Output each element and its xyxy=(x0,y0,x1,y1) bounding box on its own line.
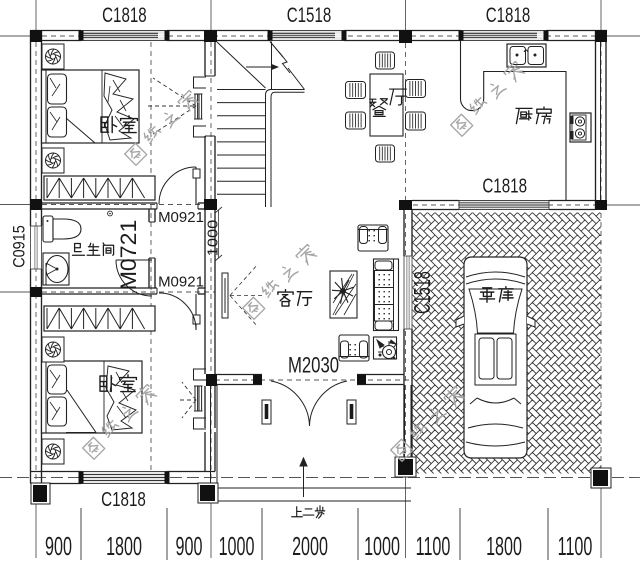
svg-text:1100: 1100 xyxy=(558,531,593,560)
svg-text:M0921: M0921 xyxy=(158,209,204,226)
svg-text:M0921: M0921 xyxy=(158,274,204,291)
svg-text:M2030: M2030 xyxy=(288,353,339,378)
svg-text:C1518: C1518 xyxy=(287,2,332,26)
svg-text:1100: 1100 xyxy=(416,531,451,560)
svg-text:1000: 1000 xyxy=(364,531,400,560)
svg-text:C1818: C1818 xyxy=(101,488,146,511)
svg-text:C1818: C1818 xyxy=(486,2,531,26)
svg-text:1800: 1800 xyxy=(486,531,522,560)
svg-text:1000: 1000 xyxy=(219,531,255,560)
svg-text:900: 900 xyxy=(176,531,203,560)
svg-text:C1518: C1518 xyxy=(411,271,436,314)
svg-text:M0721: M0721 xyxy=(116,220,140,291)
svg-text:900: 900 xyxy=(45,531,72,560)
svg-text:C1818: C1818 xyxy=(482,174,527,197)
svg-text:2000: 2000 xyxy=(292,531,328,560)
svg-text:C1818: C1818 xyxy=(102,2,147,26)
svg-text:C0915: C0915 xyxy=(10,225,28,268)
svg-text:1800: 1800 xyxy=(106,531,142,560)
